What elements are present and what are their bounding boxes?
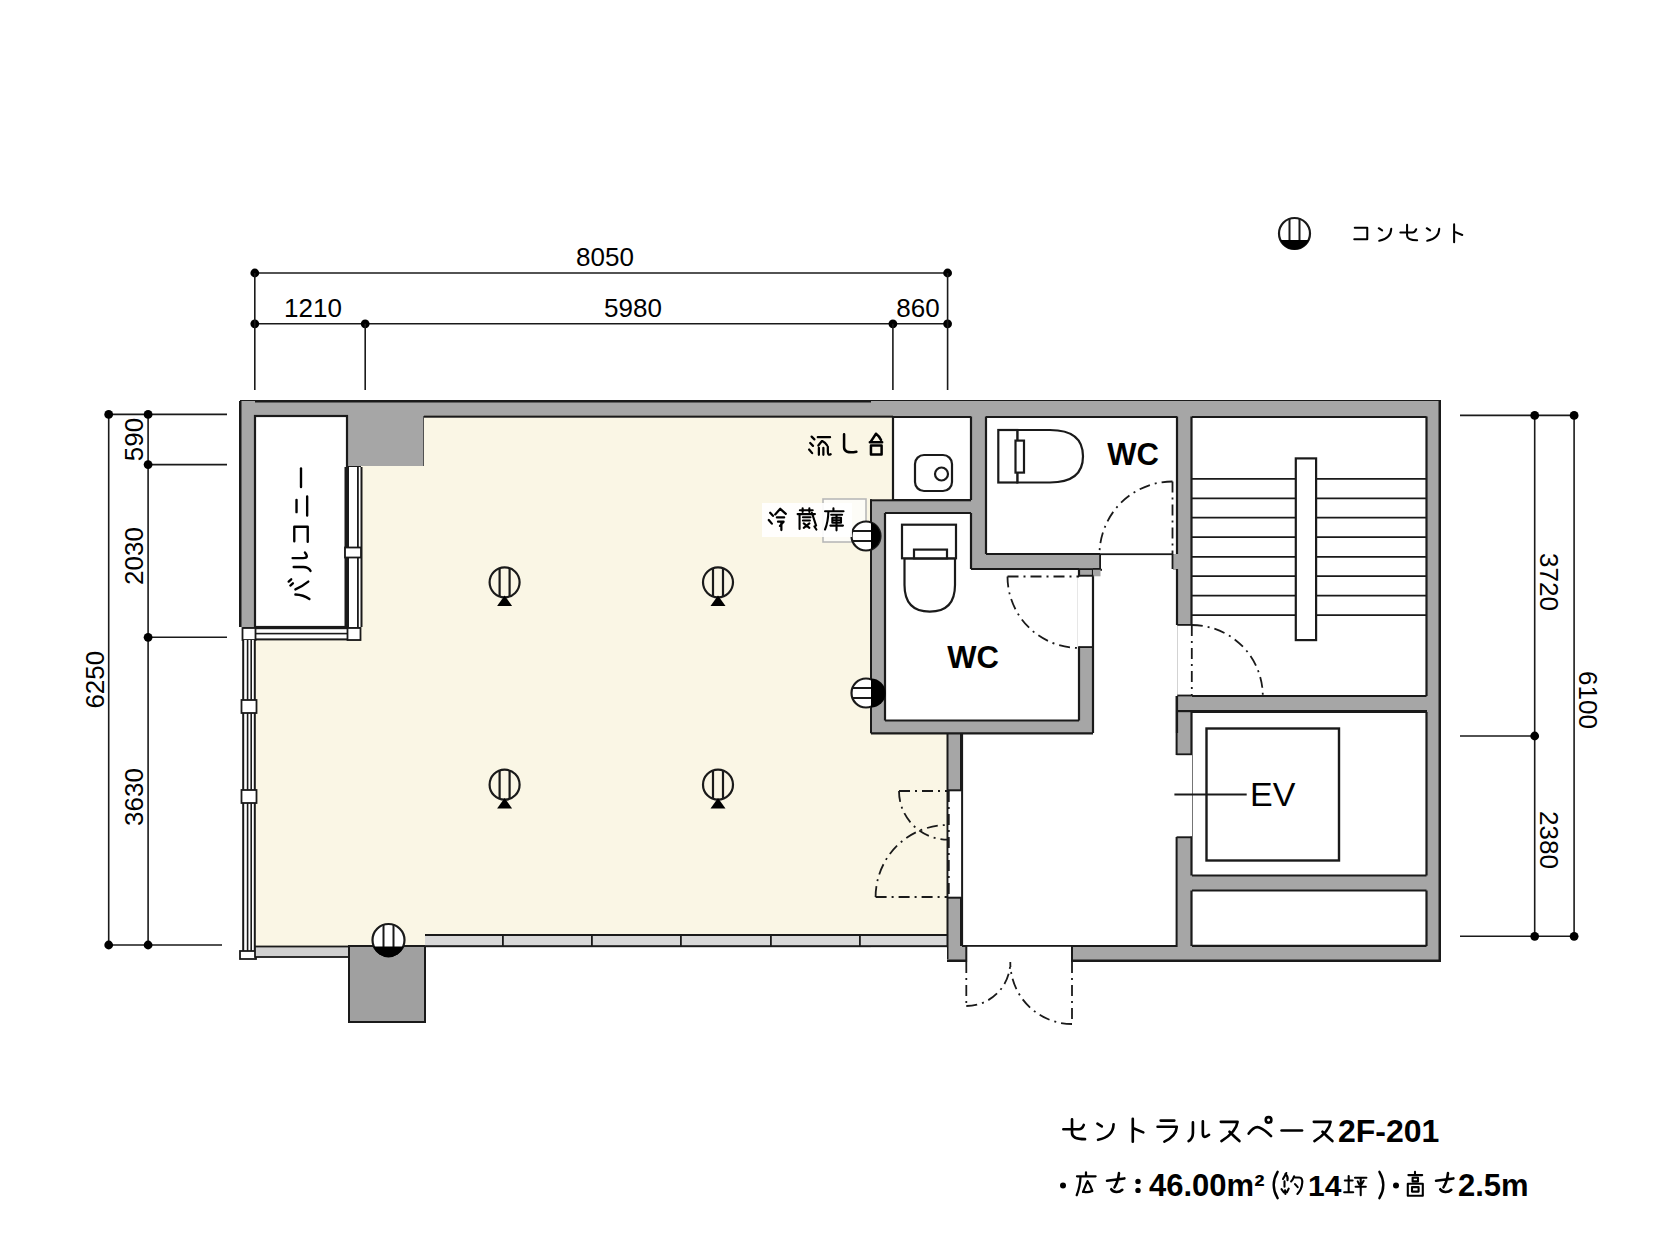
svg-text:2F-201: 2F-201 <box>1338 1113 1439 1149</box>
svg-text:1210: 1210 <box>284 293 342 323</box>
svg-text:3630: 3630 <box>119 768 149 826</box>
svg-text:EV: EV <box>1250 775 1296 813</box>
svg-text:2380: 2380 <box>1534 811 1564 869</box>
svg-text:6250: 6250 <box>80 651 110 709</box>
svg-text:8050: 8050 <box>576 242 634 272</box>
svg-text:46.00m²: 46.00m² <box>1149 1168 1264 1203</box>
svg-text:2030: 2030 <box>119 527 149 585</box>
svg-text:14: 14 <box>1308 1169 1342 1202</box>
svg-text:6100: 6100 <box>1573 671 1603 729</box>
svg-text:860: 860 <box>896 293 939 323</box>
svg-text:WC: WC <box>947 640 999 675</box>
svg-text:2.5m: 2.5m <box>1458 1168 1529 1203</box>
svg-text:590: 590 <box>119 418 149 461</box>
svg-text:5980: 5980 <box>604 293 662 323</box>
svg-text:3720: 3720 <box>1534 553 1564 611</box>
svg-text:WC: WC <box>1107 437 1159 472</box>
